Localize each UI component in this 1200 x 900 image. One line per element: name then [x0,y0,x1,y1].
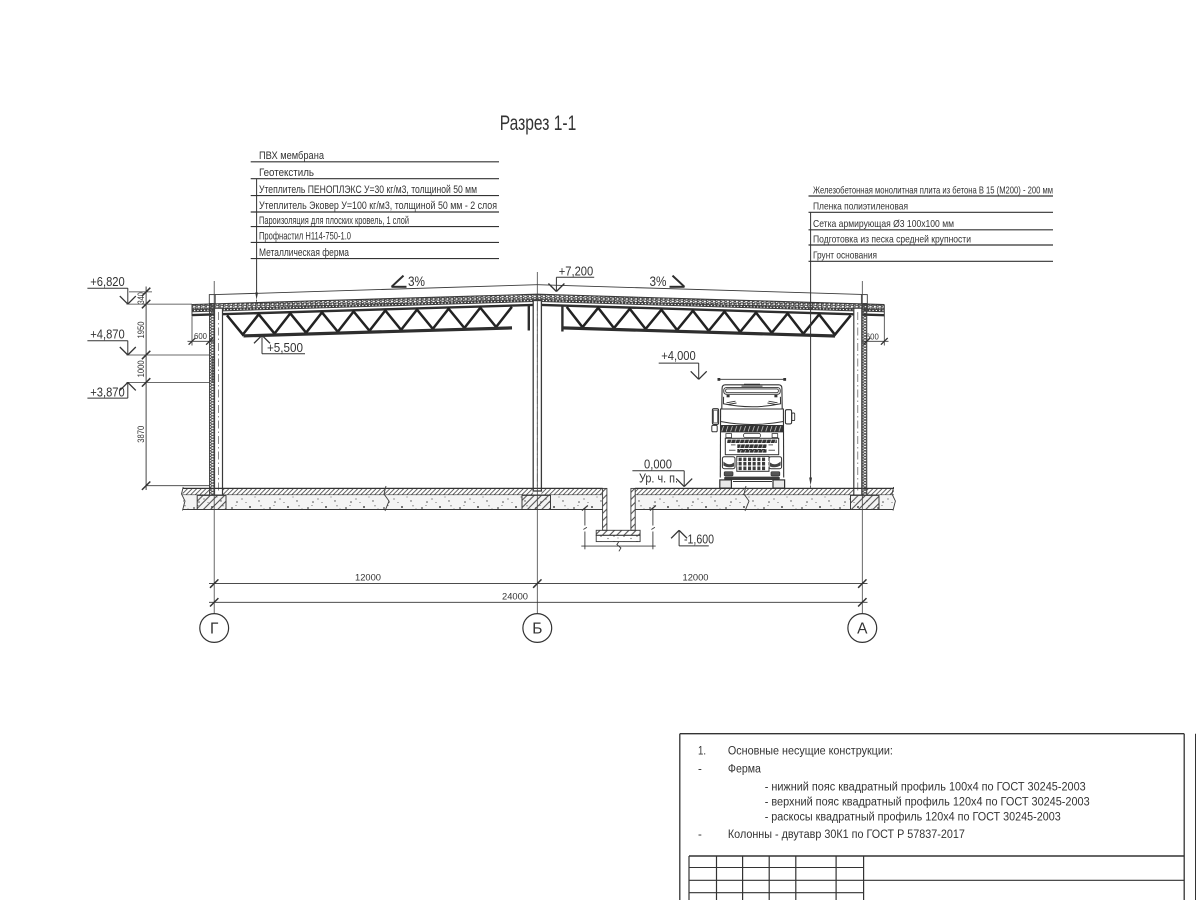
svg-text:Утеплитель ПЕНОПЛЭКС У=30 кг/м: Утеплитель ПЕНОПЛЭКС У=30 кг/м3, толщино… [259,184,477,196]
svg-text:3870: 3870 [136,426,146,443]
svg-text:12000: 12000 [683,573,709,584]
svg-text:ПВХ мембрана: ПВХ мембрана [259,150,325,162]
svg-text:Геотекстиль: Геотекстиль [259,167,314,179]
svg-text:Грунт основания: Грунт основания [813,250,877,262]
svg-text:+4,000: +4,000 [661,349,696,363]
svg-text:3%: 3% [408,274,425,289]
svg-text:24000: 24000 [502,591,528,602]
svg-text:Профнастил Н114-750-1.0: Профнастил Н114-750-1.0 [259,231,351,243]
svg-text:0,000: 0,000 [644,457,672,471]
svg-text:Пароизоляция для плоских крове: Пароизоляция для плоских кровель, 1 слой [259,215,409,227]
svg-text:+5,500: +5,500 [267,341,303,355]
svg-text:12000: 12000 [355,573,381,584]
svg-text:- нижний пояс квадратный профи: - нижний пояс квадратный профиль 100х4 п… [765,782,1086,794]
svg-text:600: 600 [194,332,208,341]
svg-text:Ур. ч. п.: Ур. ч. п. [639,472,678,486]
svg-text:-: - [698,764,702,776]
svg-text:А: А [857,621,868,638]
svg-text:Разрез 1-1: Разрез 1-1 [500,111,577,135]
svg-text:- верхний пояс квадратный проф: - верхний пояс квадратный профиль 120х4 … [765,797,1090,809]
svg-text:Металлическая ферма: Металлическая ферма [259,247,350,259]
svg-text:Пленка полиэтиленовая: Пленка полиэтиленовая [813,201,908,213]
svg-text:+3,870: +3,870 [90,385,125,399]
svg-text:Колонны - двутавр 30К1 по ГОСТ: Колонны - двутавр 30К1 по ГОСТ Р 57837-2… [728,829,965,841]
svg-text:+4,870: +4,870 [90,328,125,342]
svg-text:600: 600 [866,332,880,341]
svg-text:1000: 1000 [136,360,146,377]
svg-text:+6,820: +6,820 [90,275,125,289]
svg-text:Г: Г [210,621,219,638]
svg-text:Подготовка из песка средней кр: Подготовка из песка средней крупности [813,233,971,245]
svg-text:Сетка армирующая Ø3 100х100 мм: Сетка армирующая Ø3 100х100 мм [813,218,954,230]
svg-text:-: - [698,829,702,841]
svg-text:Б: Б [532,621,542,638]
svg-text:1.: 1. [698,746,706,758]
svg-text:Ферма: Ферма [728,764,762,776]
svg-text:Основные несущие конструкции:: Основные несущие конструкции: [728,746,893,758]
svg-text:-1,600: -1,600 [684,532,714,546]
svg-text:Утеплитель Эковер У=100 кг/м3,: Утеплитель Эковер У=100 кг/м3, толщиной … [259,200,497,212]
svg-text:340: 340 [136,292,146,304]
svg-text:- раскосы квадратный профиль 1: - раскосы квадратный профиль 120х4 по ГО… [765,812,1061,824]
svg-text:+7,200: +7,200 [559,264,594,278]
svg-text:3%: 3% [650,274,667,289]
svg-text:Железобетонная монолитная плит: Железобетонная монолитная плита из бетон… [813,184,1053,196]
svg-text:1950: 1950 [136,322,146,339]
